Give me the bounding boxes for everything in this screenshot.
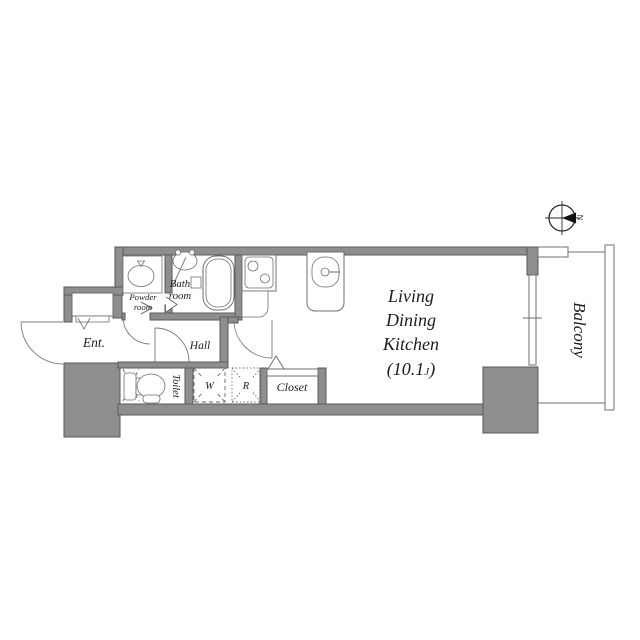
room-label-closet: Closet [277,380,308,394]
washbasin-icon [128,266,154,287]
room-label-powder-2: room [134,302,152,312]
room-label-bath-1: Bath [170,278,190,290]
toilet-tank [124,373,136,400]
wall-entry-right [113,295,122,318]
bath-tap-right-icon [189,250,194,255]
ldk-area-prefix: (10.1 [387,359,425,380]
compass-needle [562,213,576,224]
shoe-cabinet-step [76,316,109,322]
room-label-entrance: Ent. [82,335,105,350]
balcony-railing [605,245,614,410]
stove-icon [245,257,273,288]
bathtub-inner [206,259,231,307]
toilet-bowl [137,374,165,398]
wall-bottom [118,404,487,415]
wall-hall-right [220,317,228,368]
room-label-hall: Hall [189,340,210,352]
kitchen-cabinet [242,291,268,317]
room-label-balcony: Balcony [570,302,589,358]
floor-plan: N Ent. Powder room Bath room Hall Toilet… [0,0,640,640]
toilet-icon [123,369,165,403]
window-sliding-door [529,275,536,365]
wall-toilet-right [185,368,193,404]
bath-tap-left-icon [175,250,180,255]
powder-door-swing [123,317,150,344]
closet-door [267,369,318,376]
faucet-icon [321,268,329,276]
room-label-bath-2: room [169,290,192,302]
room-label-ldk-area: (10.1J) [387,359,435,380]
pillar-bottom-right [483,367,538,433]
room-label-refrigerator: R [242,381,250,392]
room-label-powder-1: Powder [128,292,157,302]
wall-closet-right [318,368,326,404]
entry-door-swing [21,322,63,364]
room-label-ldk-2: Dining [385,310,436,330]
hall-door-swing [155,328,189,362]
burner-icon [248,261,258,271]
wall-entry-left [64,295,72,322]
bath-shelf [191,277,201,288]
wall-toilet-top [118,362,228,368]
ldk-area-suffix: ) [428,359,435,380]
room-label-washer: W [205,381,215,392]
floorplan-page: N Ent. Powder room Bath room Hall Toilet… [0,0,640,640]
room-label-ldk-1: Living [387,286,434,306]
burner-icon [261,274,270,283]
room-label-ldk-3: Kitchen [382,334,439,354]
balcony-partition [538,247,568,257]
block-bottom-left [64,363,120,437]
room-label-toilet: Toilet [170,374,181,399]
shoe-cabinet [72,293,113,316]
ldk-door-swing [234,320,272,358]
toilet-paper-holder [143,395,160,403]
compass-icon: N [545,201,585,235]
wall-top-right-corner [527,247,538,275]
wall-bath-right [235,255,242,317]
compass-n-label: N [576,215,585,221]
